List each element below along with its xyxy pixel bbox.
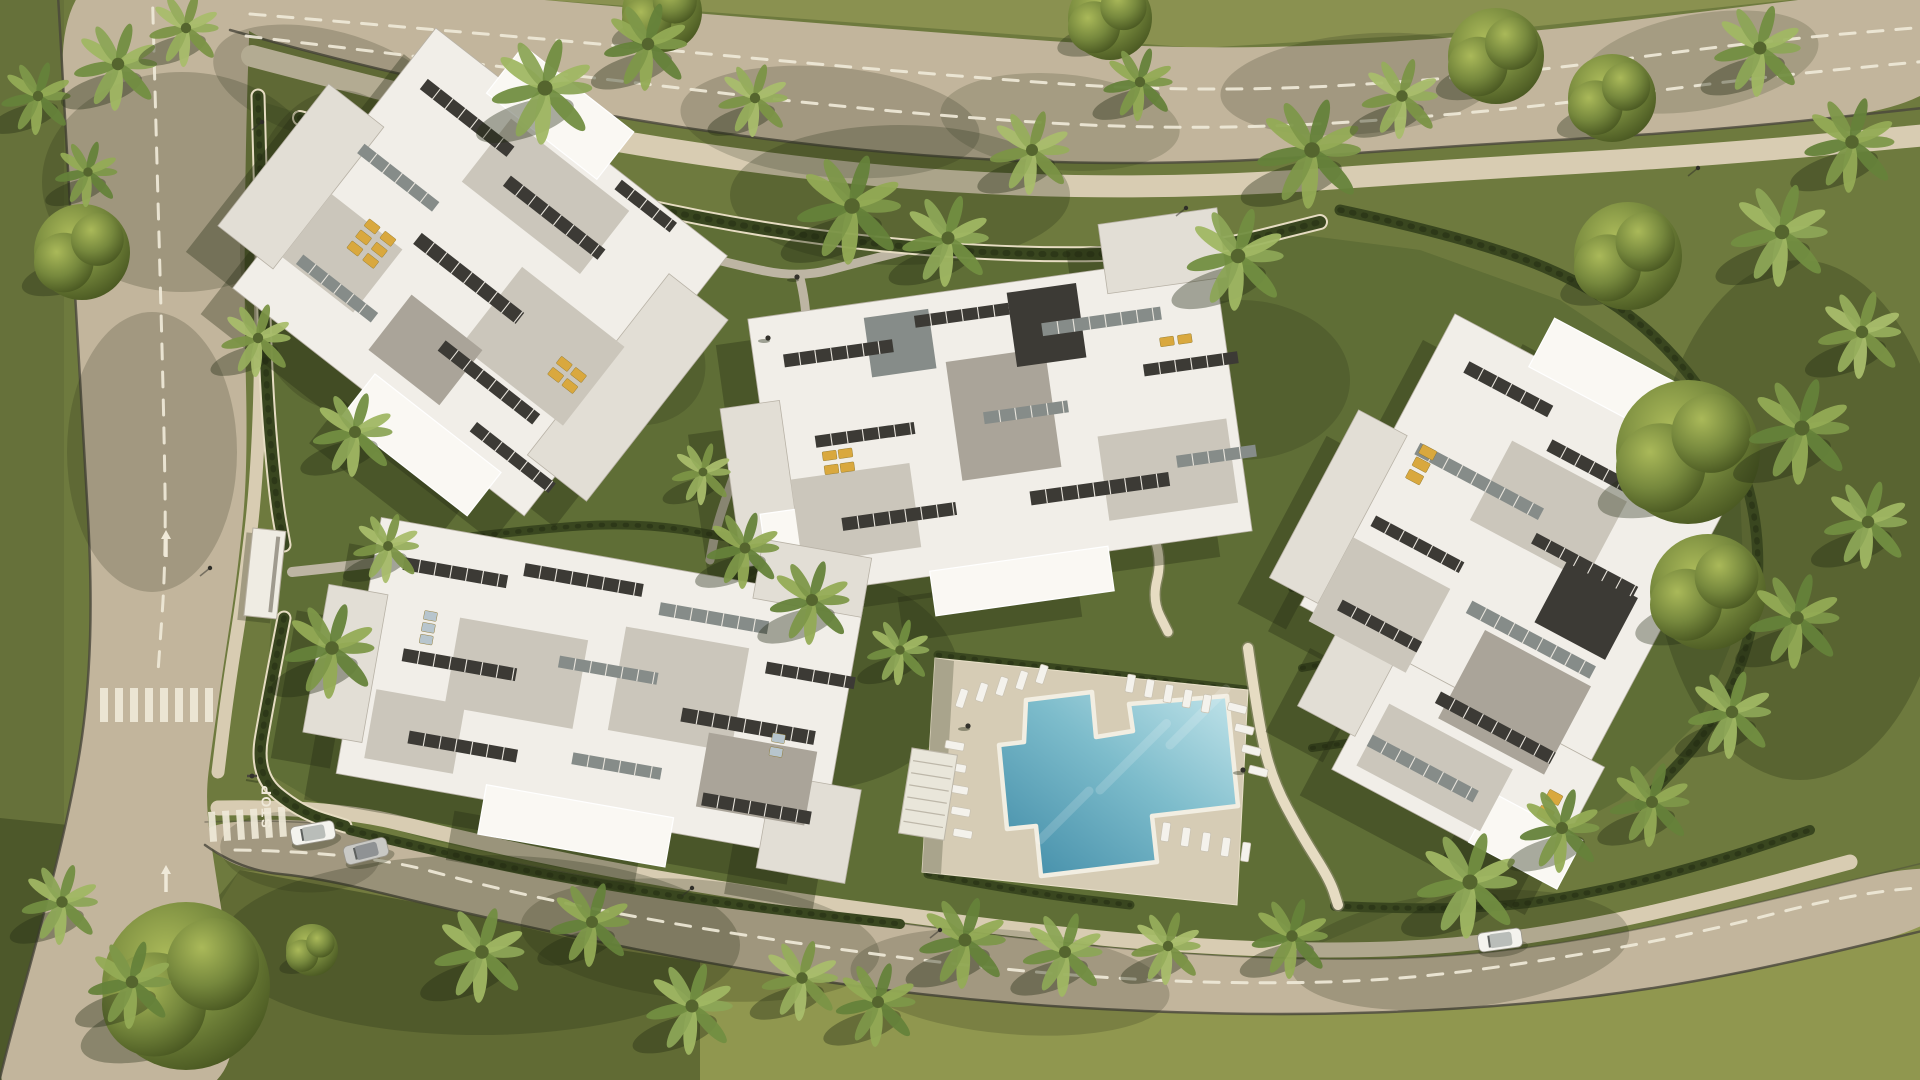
palm-crown (1856, 326, 1868, 338)
aerial-render: STOP (0, 0, 1920, 1080)
palm-crown (126, 976, 138, 988)
palm-crown (796, 972, 807, 983)
cast-shadow (67, 312, 237, 592)
pedestrian (765, 335, 770, 340)
rooftop-lounger (838, 448, 853, 459)
street-lamp (1184, 206, 1188, 210)
tree-canopy (306, 929, 335, 958)
palm-crown (1304, 142, 1320, 158)
crosswalk-stripe (160, 688, 168, 722)
palm-crown (642, 38, 654, 50)
palm-crown (1775, 225, 1790, 240)
street-lamp (260, 120, 264, 124)
roof-panel (1098, 418, 1239, 520)
rooftop-lounger (824, 464, 839, 475)
palm-crown (1163, 941, 1173, 951)
palm-crown (1794, 420, 1809, 435)
palm-crown (844, 198, 860, 214)
scene-svg: STOP (0, 0, 1920, 1080)
palm-crown (586, 916, 598, 928)
crosswalk-stripe (130, 688, 138, 722)
palm-crown (1726, 706, 1738, 718)
palm-crown (1286, 930, 1297, 941)
palm-crown (750, 93, 760, 103)
palm-crown (1754, 42, 1767, 55)
crosswalk-stripe (205, 688, 213, 722)
rooftop-lounger (822, 450, 837, 461)
palm-crown (537, 80, 552, 95)
tree-canopy (1616, 212, 1675, 271)
palm-crown (686, 1000, 699, 1013)
palm-crown (699, 468, 708, 477)
palm-crown (112, 58, 124, 70)
palm-crown (56, 896, 67, 907)
pedestrian (794, 274, 799, 279)
palm-crown (1231, 249, 1246, 264)
palm-crown (959, 934, 972, 947)
palm-crown (1026, 144, 1038, 156)
palm-crown (33, 91, 43, 101)
crosswalk-stripe (100, 688, 108, 722)
palm-crown (1862, 516, 1874, 528)
street-lamp (208, 566, 212, 570)
tree-canopy (1671, 394, 1750, 473)
palm-crown (83, 167, 92, 176)
pedestrian (1240, 767, 1245, 772)
pool-layer (899, 658, 1269, 905)
crosswalk-stripe (175, 688, 183, 722)
crosswalk-stripe (145, 688, 153, 722)
stop-marking: STOP (258, 784, 274, 828)
palm-crown (1556, 822, 1568, 834)
street-lamp (938, 928, 942, 932)
palm-crown (1790, 611, 1804, 625)
cyclist (250, 774, 255, 779)
palm-crown (806, 594, 818, 606)
palm-crown (1462, 874, 1477, 889)
rooftop-lounger (1177, 334, 1192, 345)
crosswalk-stripe (115, 688, 123, 722)
palm-crown (475, 945, 489, 959)
palm-crown (740, 543, 751, 554)
rooftop-lounger (840, 462, 855, 473)
pedestrian (965, 723, 970, 728)
palm-crown (895, 645, 904, 654)
palm-crown (1646, 796, 1658, 808)
crosswalk-stripe (190, 688, 198, 722)
street-lamp (1696, 166, 1700, 170)
rooftop-lounger (1159, 336, 1174, 347)
tree-canopy (1485, 17, 1538, 70)
roof-panel (608, 627, 749, 752)
palm-crown (1396, 90, 1407, 101)
palm-crown (349, 426, 361, 438)
palm-crown (325, 641, 339, 655)
palm-crown (1135, 77, 1145, 87)
palm-crown (942, 232, 955, 245)
palm-crown (1845, 135, 1859, 149)
palm-crown (253, 333, 263, 343)
street-lamp (690, 886, 694, 890)
tree-canopy (71, 213, 124, 266)
tree-canopy (1695, 545, 1759, 609)
palm-crown (1059, 946, 1071, 958)
palm-crown (383, 541, 393, 551)
palm-crown (872, 996, 884, 1008)
tree-canopy (1602, 62, 1650, 110)
tree-canopy (167, 918, 259, 1010)
palm-crown (181, 23, 191, 33)
